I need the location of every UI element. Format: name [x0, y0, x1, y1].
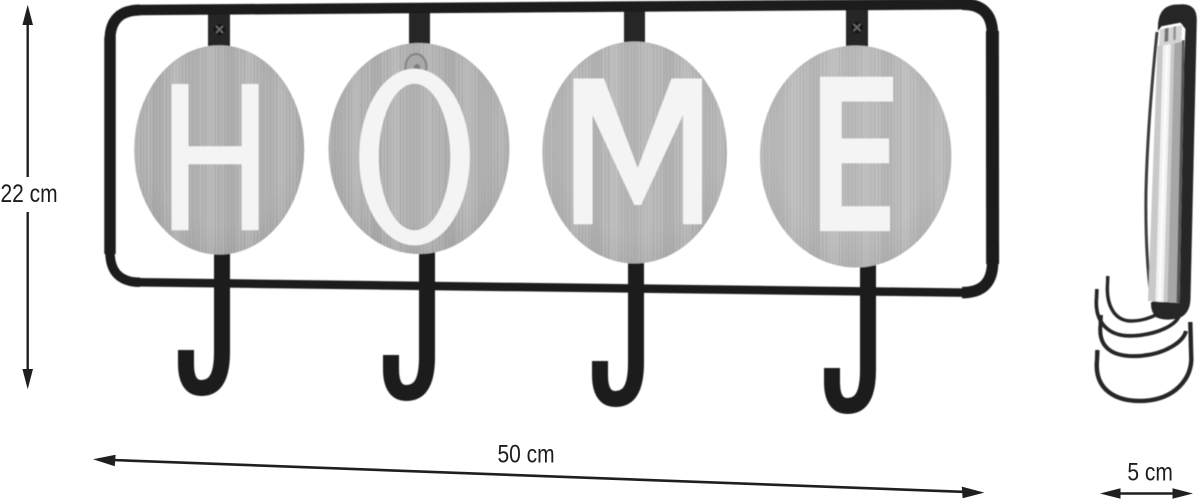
- svg-text:50 cm: 50 cm: [498, 440, 555, 468]
- svg-text:22 cm: 22 cm: [1, 179, 58, 207]
- svg-text:5 cm: 5 cm: [1127, 458, 1172, 486]
